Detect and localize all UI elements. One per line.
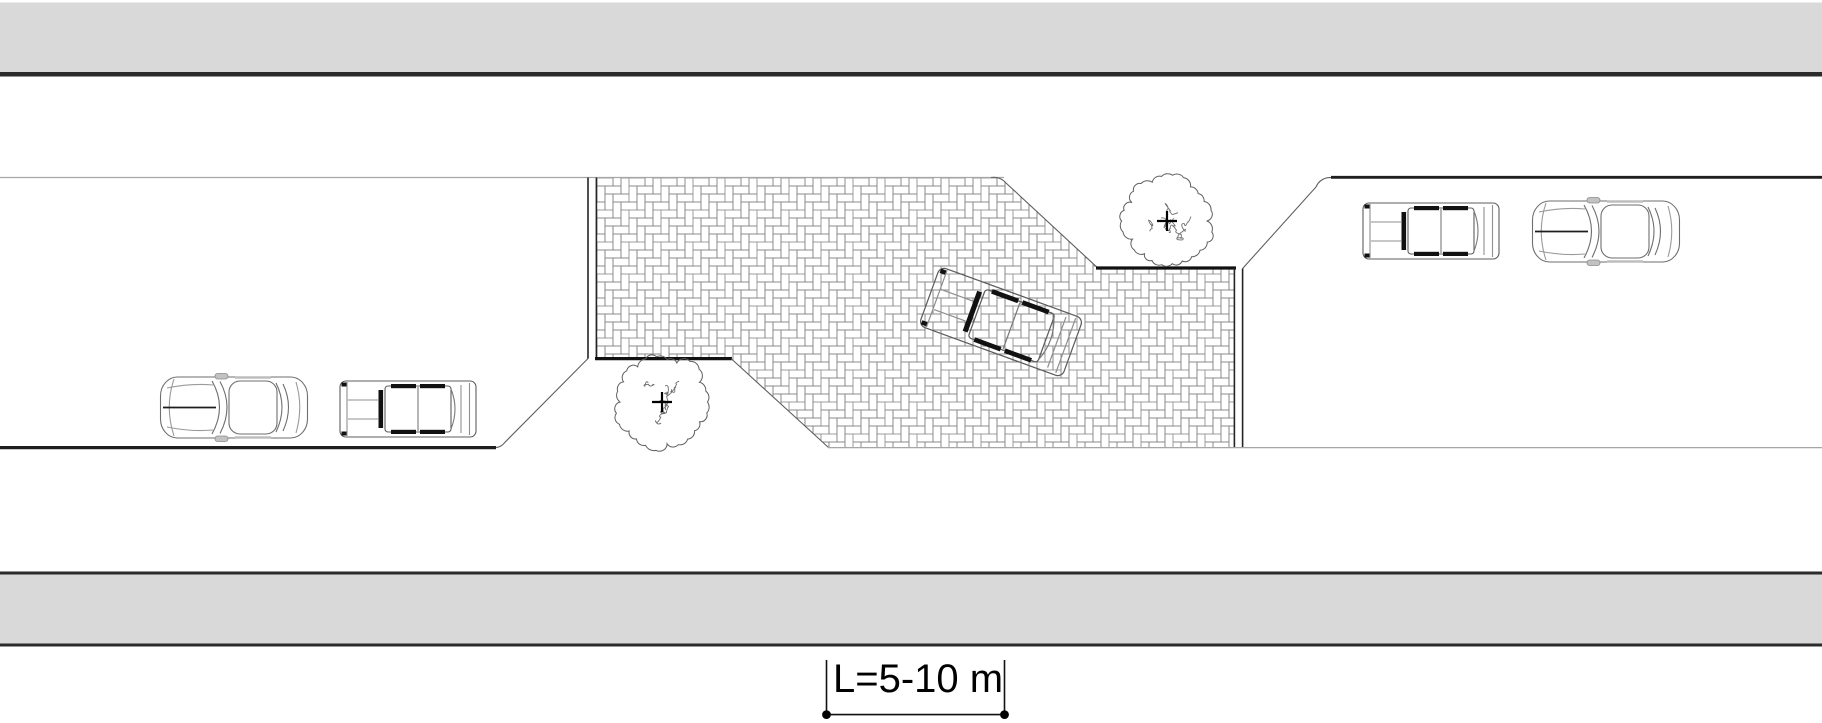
curb-line-sidewalk-bottom-lower <box>0 644 1822 647</box>
curb-line-sidewalk-bottom-upper <box>0 572 1822 575</box>
sidewalk-top <box>0 3 1822 77</box>
tree-right <box>1120 174 1213 267</box>
buildout-right-edge-right-diagonal <box>1243 178 1336 269</box>
curb-line-sidewalk-top <box>0 72 1822 77</box>
parked-car-right-2 <box>1533 198 1680 266</box>
tree-left <box>615 355 709 451</box>
dimension-label: L=5-10 m <box>833 657 1003 701</box>
dimension-endpoint-right <box>1000 710 1009 719</box>
dimension-endpoint-left <box>822 710 831 719</box>
dimension-annotation: L=5-10 m <box>822 657 1009 719</box>
parked-car-right-1 <box>1363 203 1499 259</box>
parked-car-left-1 <box>161 374 308 442</box>
chicane-plan-drawing: L=5-10 m <box>0 0 1822 723</box>
sidewalk-bottom <box>0 572 1822 647</box>
parked-car-left-2 <box>340 381 476 437</box>
buildout-left-edge-left-diagonal <box>496 359 588 448</box>
paved-plateau-herringbone <box>597 177 1235 447</box>
